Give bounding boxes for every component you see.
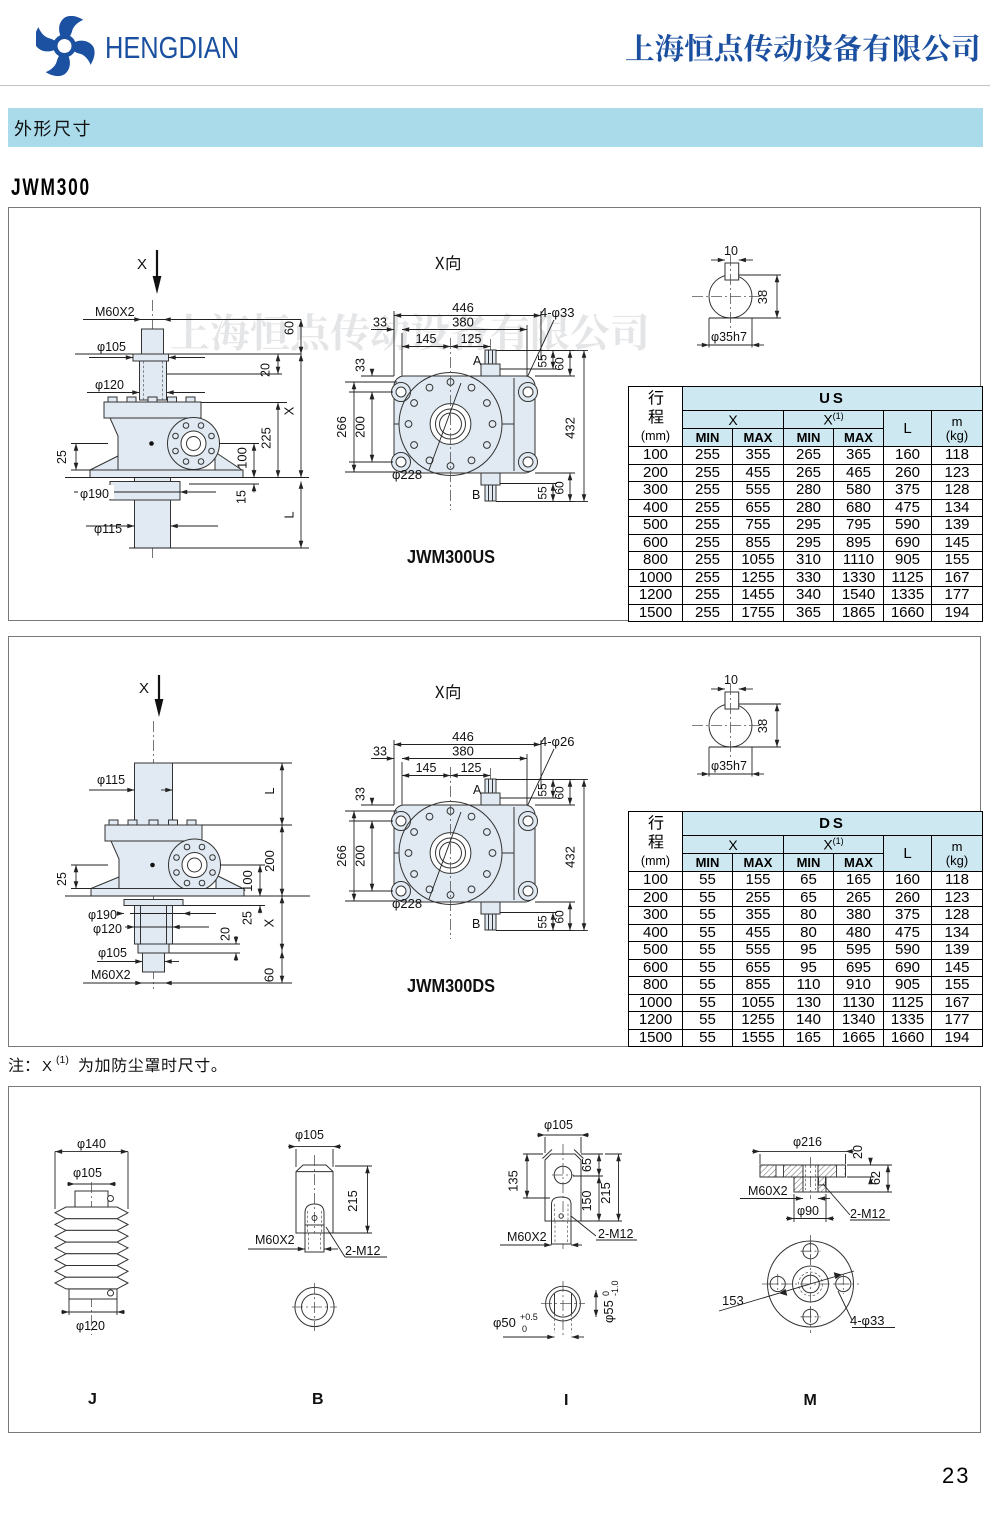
svg-text:33: 33	[354, 358, 368, 372]
svg-text:M60X2: M60X2	[507, 1230, 547, 1244]
svg-text:4-φ33: 4-φ33	[540, 305, 574, 320]
svg-text:33: 33	[373, 745, 387, 759]
svg-text:33: 33	[354, 787, 368, 801]
svg-text:10: 10	[724, 244, 738, 258]
svg-text:60: 60	[283, 321, 297, 335]
svg-text:X: X	[262, 918, 277, 927]
svg-text:4-φ33: 4-φ33	[850, 1313, 884, 1328]
svg-text:215: 215	[345, 1190, 360, 1212]
svg-text:200: 200	[353, 416, 368, 438]
svg-text:φ228: φ228	[392, 467, 422, 482]
svg-text:2-M12: 2-M12	[598, 1227, 633, 1241]
svg-text:M60X2: M60X2	[95, 305, 135, 319]
svg-text:φ55: φ55	[601, 1300, 616, 1323]
svg-text:153: 153	[722, 1293, 744, 1308]
svg-text:X: X	[137, 256, 147, 273]
svg-text:φ90: φ90	[797, 1204, 819, 1218]
svg-text:62: 62	[869, 1171, 883, 1185]
svg-text:266: 266	[334, 416, 349, 438]
svg-text:125: 125	[461, 332, 482, 346]
svg-text:215: 215	[598, 1182, 613, 1204]
svg-text:380: 380	[452, 744, 474, 759]
svg-text:38: 38	[755, 290, 770, 304]
svg-text:-1.0: -1.0	[610, 1280, 620, 1296]
svg-text:266: 266	[334, 845, 349, 867]
svg-text:200: 200	[353, 845, 368, 867]
svg-text:20: 20	[219, 927, 233, 941]
svg-text:20: 20	[259, 363, 273, 377]
svg-text:φ190: φ190	[88, 908, 117, 922]
svg-text:M60X2: M60X2	[255, 1233, 295, 1247]
svg-text:0: 0	[522, 1324, 527, 1334]
svg-text:25: 25	[55, 450, 69, 464]
svg-text:60: 60	[553, 786, 567, 800]
svg-text:B: B	[312, 1391, 324, 1408]
svg-text:M60X2: M60X2	[91, 968, 131, 982]
svg-text:φ140: φ140	[77, 1137, 106, 1151]
svg-text:φ35h7: φ35h7	[711, 759, 747, 773]
svg-text:φ115: φ115	[94, 522, 122, 536]
svg-text:φ190: φ190	[80, 487, 109, 501]
svg-text:φ120: φ120	[76, 1319, 105, 1333]
svg-text:φ35h7: φ35h7	[711, 330, 747, 344]
svg-text:145: 145	[416, 761, 437, 775]
svg-text:432: 432	[563, 417, 578, 439]
svg-text:55: 55	[536, 783, 550, 797]
svg-text:432: 432	[563, 846, 578, 868]
svg-text:φ105: φ105	[544, 1118, 573, 1132]
svg-text:446: 446	[452, 300, 474, 315]
svg-text:100: 100	[235, 447, 250, 469]
svg-text:55: 55	[536, 486, 550, 500]
svg-text:B: B	[472, 488, 480, 502]
svg-text:(1): (1)	[56, 1054, 69, 1066]
svg-text:145: 145	[416, 332, 437, 346]
svg-text:φ115: φ115	[97, 773, 125, 787]
svg-text:38: 38	[755, 719, 770, 733]
svg-text:φ105: φ105	[295, 1128, 324, 1142]
svg-text:X: X	[282, 406, 297, 415]
svg-text:+0.5: +0.5	[520, 1312, 538, 1322]
svg-text:M60X2: M60X2	[748, 1184, 788, 1198]
svg-text:55: 55	[536, 354, 550, 368]
svg-text:4-φ26: 4-φ26	[540, 734, 574, 749]
svg-text:I: I	[564, 1392, 568, 1409]
svg-text:J: J	[88, 1391, 97, 1408]
svg-text:446: 446	[452, 729, 474, 744]
svg-text:φ120: φ120	[95, 378, 124, 392]
svg-text:25: 25	[55, 872, 69, 886]
svg-text:65: 65	[580, 1158, 594, 1172]
svg-text:φ105: φ105	[73, 1166, 102, 1180]
svg-text:225: 225	[259, 427, 274, 449]
svg-text:60: 60	[553, 910, 567, 924]
svg-text:25: 25	[241, 911, 255, 925]
svg-text:X: X	[139, 680, 149, 697]
svg-text:60: 60	[262, 968, 277, 982]
svg-text:B: B	[472, 917, 480, 931]
svg-text:55: 55	[536, 915, 550, 929]
svg-text:125: 125	[461, 761, 482, 775]
svg-text:φ216: φ216	[793, 1135, 822, 1149]
svg-text:φ105: φ105	[97, 340, 126, 354]
svg-text:L: L	[282, 511, 297, 518]
svg-text:M: M	[804, 1392, 817, 1409]
svg-text:10: 10	[724, 673, 738, 687]
svg-text:60: 60	[553, 357, 567, 371]
svg-text:JWM300US: JWM300US	[407, 547, 495, 567]
svg-text:2-M12: 2-M12	[345, 1244, 380, 1258]
svg-text:20: 20	[851, 1145, 865, 1159]
svg-text:380: 380	[452, 315, 474, 330]
svg-text:60: 60	[553, 481, 567, 495]
svg-text:X: X	[42, 1058, 52, 1075]
svg-text:150: 150	[580, 1191, 594, 1212]
svg-text:200: 200	[262, 850, 277, 872]
svg-text:JWM300DS: JWM300DS	[407, 976, 495, 996]
svg-text:L: L	[262, 787, 277, 794]
svg-text:2-M12: 2-M12	[850, 1207, 885, 1221]
svg-text:100: 100	[240, 870, 255, 892]
svg-text:φ120: φ120	[93, 922, 122, 936]
svg-text:33: 33	[373, 316, 387, 330]
svg-text:φ228: φ228	[392, 896, 422, 911]
svg-text:135: 135	[506, 1170, 521, 1192]
svg-text:φ105: φ105	[98, 946, 127, 960]
svg-text:15: 15	[235, 490, 249, 504]
svg-text:φ50: φ50	[493, 1315, 516, 1330]
